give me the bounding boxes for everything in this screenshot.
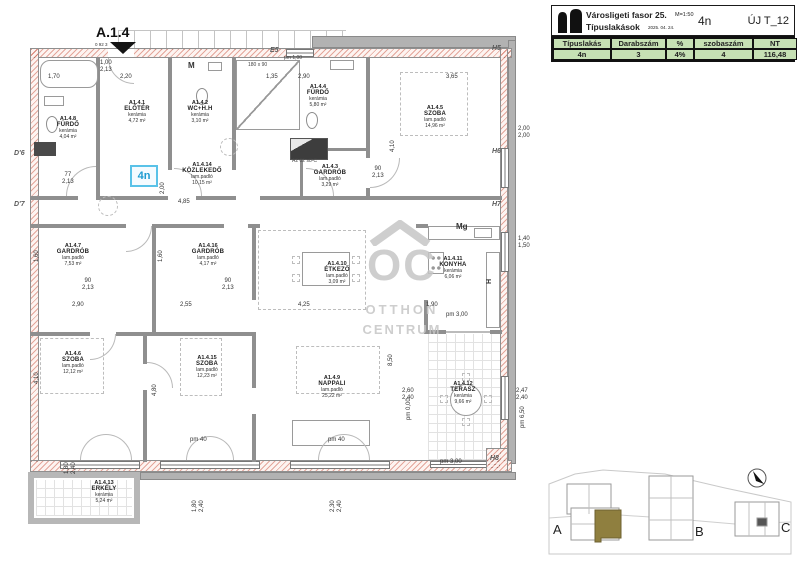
window	[501, 148, 509, 188]
dimension-label: 8,50	[388, 354, 395, 366]
door-swing	[147, 362, 173, 388]
room-label: A1.4.5SZOBAlam.padló14,96 m²	[403, 105, 467, 130]
company-logo-icon	[556, 9, 583, 39]
door-swing	[106, 434, 132, 460]
table-value-cell: 3	[611, 49, 666, 60]
dimension-label: 4,80	[152, 384, 159, 396]
lift-marker: M	[188, 61, 195, 70]
exterior-wall	[140, 472, 516, 480]
title-block-header: Városligeti fasor 25. M=1:50 Típuslakáso…	[551, 5, 795, 36]
table-header-cell: NT	[753, 38, 797, 49]
exterior-wall	[312, 36, 516, 48]
parapet-label: pm 1,00	[284, 55, 302, 61]
shaft-label: A2 02 s8-C	[292, 158, 317, 164]
axis-marker: H8	[490, 455, 499, 462]
window	[290, 461, 390, 469]
building-label-b: B	[695, 524, 704, 539]
kitchen-sink	[474, 228, 492, 238]
dimension-label: 77 2,13	[62, 172, 74, 186]
room-label: A1.4.1ELŐTÉRkerámia4,72 m²	[105, 100, 169, 125]
dimension-label: 1,90	[426, 302, 438, 309]
dimension-label: pm 3,00	[446, 312, 468, 319]
dimension-label: 4,10	[34, 372, 41, 384]
fridge-marker: H	[486, 279, 493, 284]
dimension-label: 2,20	[120, 74, 132, 81]
dimension-label: pm 6,50	[520, 406, 527, 428]
table-header-cell: %	[666, 38, 694, 49]
entrance-marker	[110, 42, 136, 54]
door-swing	[210, 436, 234, 460]
axis-marker: D'7	[14, 201, 25, 208]
document-date: 2025. 04. 24.	[648, 25, 674, 30]
watermark-line2: CENTRUM	[350, 322, 454, 337]
site-plan: A B C	[545, 462, 795, 562]
room-label: A1.4.8FÜRDŐkerámia4,04 m²	[36, 116, 100, 141]
unit-type-code: 4n	[698, 14, 711, 28]
chair	[462, 418, 470, 426]
dimension-label: 2,30 2,40	[330, 500, 344, 512]
project-title: Városligeti fasor 25.	[586, 10, 667, 20]
dimension-label: 2,90	[72, 302, 84, 309]
door-swing	[80, 434, 106, 460]
floorplan-sheet: A.1.4 0 92 3 4n A1.4.8FÜRDŐkerámia4,04 m…	[0, 0, 800, 565]
dimension-label: 2,00 2,00	[518, 126, 530, 140]
table-header-cell: Darabszám	[611, 38, 666, 49]
dimension-label: 1,80 2,40	[64, 462, 78, 474]
room-label: A1.4.2WC+H.Hkerámia3,10 m²	[168, 100, 232, 125]
room-label: A1.4.9NAPPALIlam.padló25,22 m²	[300, 375, 364, 400]
shower-size-label: 180 x 90	[248, 62, 267, 68]
washbasin	[44, 96, 64, 106]
dimension-label: 90 2,13	[82, 278, 94, 292]
room-label: A1.4.16GARDRÓBlam.padló4,17 m²	[176, 243, 240, 268]
north-arrow	[748, 469, 766, 487]
dimension-label: 2,00	[160, 182, 167, 194]
appliance-marker: Mg	[456, 222, 468, 231]
type-table: Típuslakás Darabszám % szobaszám NT 4n 3…	[551, 36, 795, 62]
dimension-label: 2,47 2,40	[516, 388, 528, 402]
watermark-line1: OTTHON	[350, 302, 454, 317]
washbasin	[330, 60, 354, 70]
document-subtitle: Típuslakások	[586, 22, 640, 32]
reference-circle	[98, 196, 118, 216]
room-label: A1.4.11KONYHAkerámia6,06 m²	[421, 256, 485, 281]
dimension-label: pm 0,00	[406, 398, 413, 420]
sheet-label: A.1.4	[96, 24, 129, 40]
unit-tag: 4n	[130, 165, 158, 187]
dimension-label: 2,90	[298, 74, 310, 81]
chair	[462, 373, 470, 381]
dimension-label: 4,10	[390, 140, 397, 152]
table-value-cell: 116,48	[753, 49, 797, 60]
building-label-a: A	[553, 522, 562, 537]
room-label: A1.4.3GARDRÓBlam.padló3,29 m²	[298, 164, 362, 189]
building-label-c: C	[781, 520, 790, 535]
shaft	[290, 138, 328, 160]
table-header-cell: Típuslakás	[553, 38, 611, 49]
dimension-label: 4,85	[178, 199, 190, 206]
dimension-label: pm 40	[190, 437, 207, 444]
dimension-label: 1,60	[158, 250, 165, 262]
room-label: A1.4.14KÖZLEKEDŐlam.padló10,15 m²	[170, 162, 234, 187]
room-label: A1.4.10ÉTKEZŐlam.padló3,09 m²	[305, 261, 369, 286]
dimension-label: 2,55	[180, 302, 192, 309]
table-header-cell: szobaszám	[694, 38, 753, 49]
sheet-code: ÚJ T_12	[748, 15, 789, 27]
dimension-label: pm 40	[328, 437, 345, 444]
dimension-label: 4,25	[298, 302, 310, 309]
room-label: A1.4.13ERKÉLYkerámia5,24 m²	[72, 480, 136, 505]
dimension-label: 1,40 1,50	[518, 236, 530, 250]
door-swing	[126, 226, 152, 252]
kitchen-counter	[486, 252, 500, 328]
drawing-scale: M=1:50	[675, 12, 694, 18]
room-label: A1.4.7GARDRÓBlam.padló7,53 m²	[41, 243, 105, 268]
dimension-label: 90 2,13	[372, 166, 384, 180]
dimension-label: 1,60	[34, 250, 41, 262]
dimension-label: 1,70	[48, 74, 60, 81]
table-value-cell: 4	[694, 49, 753, 60]
exterior-wall	[508, 40, 516, 464]
room-label: A1.4.6SZOBAlam.padló12,12 m²	[41, 351, 105, 376]
axis-marker: D'6	[14, 150, 25, 157]
axis-marker: H7	[492, 201, 501, 208]
axis-marker: H5	[492, 45, 501, 52]
dimension-label: 90 2,13	[222, 278, 234, 292]
room-label: A1.4.4FÜRDŐkerámia5,80 m²	[286, 84, 350, 109]
table-value-cell: 4%	[666, 49, 694, 60]
axis-marker: H6	[492, 148, 501, 155]
washing-machine	[34, 142, 56, 156]
room-label: A1.4.15SZOBAlam.padló12,23 m²	[175, 355, 239, 380]
window	[501, 376, 509, 420]
washbasin	[208, 62, 222, 71]
table-value-cell: 4n	[553, 49, 611, 60]
reference-circle	[220, 138, 238, 156]
title-block: Városligeti fasor 25. M=1:50 Típuslakáso…	[551, 5, 795, 62]
room-label: A1.4.12TERASZkerámia9,66 m²	[431, 381, 495, 406]
dimension-label: 1,80 2,40	[192, 500, 206, 512]
dimension-label: 3,65	[446, 74, 458, 81]
sheet-sublabel: 0 92 3	[95, 42, 108, 47]
axis-marker: E5	[270, 47, 279, 54]
toilet	[306, 112, 318, 129]
window	[501, 232, 509, 272]
window	[160, 461, 260, 469]
highlighted-unit	[595, 510, 621, 542]
floor-plan: A.1.4 0 92 3 4n A1.4.8FÜRDŐkerámia4,04 m…	[0, 0, 545, 565]
dimension-label: 1,00 2,13	[100, 60, 112, 74]
dimension-label: 1,35	[266, 74, 278, 81]
dimension-label: pm 3,00	[440, 459, 462, 466]
